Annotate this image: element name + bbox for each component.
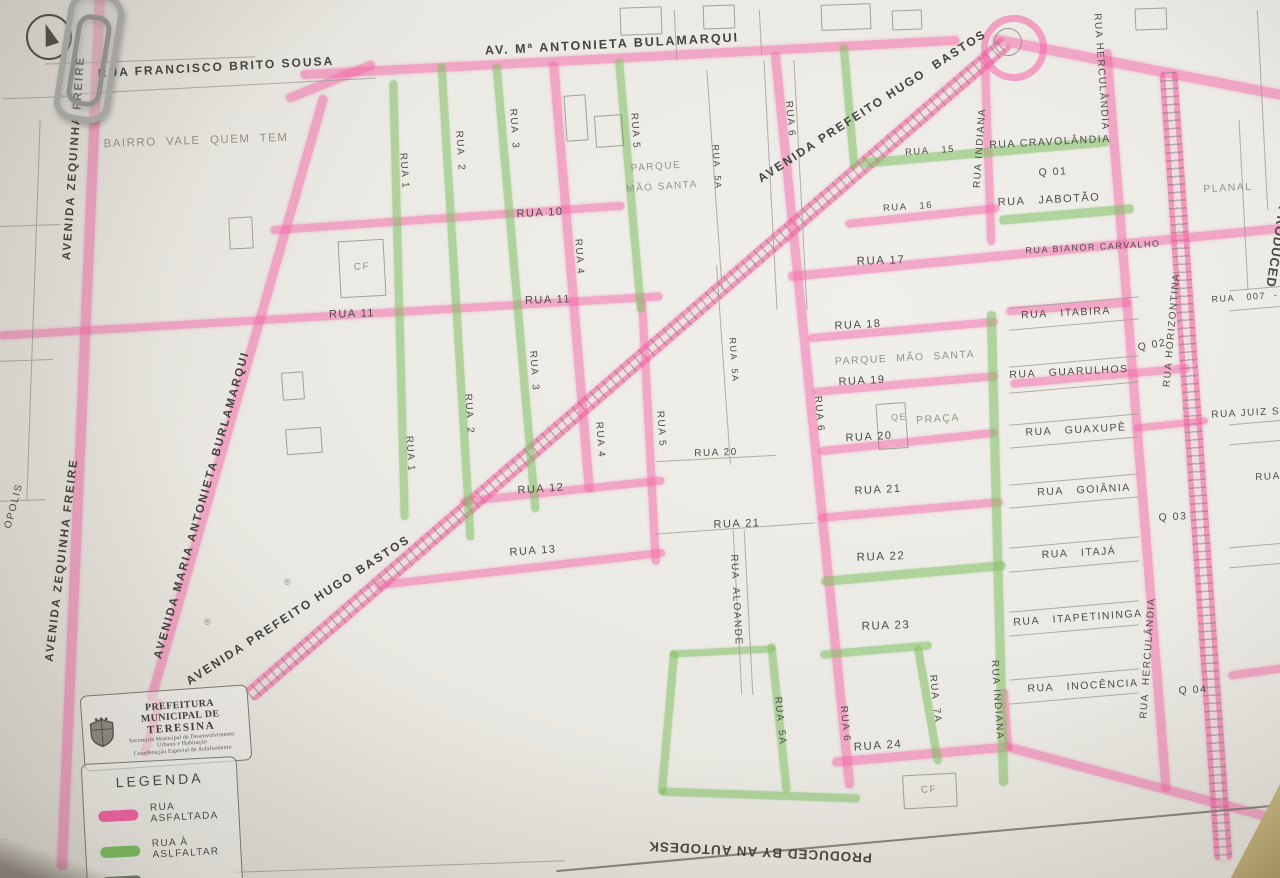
street-label: MÃO SANTA (626, 179, 698, 195)
street-label: RUA 19 (838, 374, 885, 388)
legend-item-label: RUA À ASLFALTAR (152, 834, 241, 861)
street-label: RUA 4 (593, 421, 607, 458)
street-label: RUA 20 (694, 447, 738, 460)
road-rua-22 (820, 560, 1005, 585)
street-label: RUA 5 (654, 410, 668, 447)
map-line (0, 223, 60, 226)
road-loop-west (658, 649, 679, 794)
street-label: RUA 007 - (1211, 290, 1279, 305)
street-label: Q 02 (1137, 337, 1167, 354)
street-label: PRODUCED BY AN AUTODESK (648, 839, 873, 866)
building-outline (821, 3, 872, 31)
road-east-stub (1227, 664, 1280, 680)
street-label: RUA 6 (812, 395, 826, 432)
map-line (1009, 496, 1139, 508)
street-label: CF (921, 784, 938, 796)
street-label: RUA 5 (628, 112, 642, 149)
street-label: RUA 2 (453, 130, 467, 171)
street-label: BAIRRO VALE QUEM TEM (103, 132, 288, 150)
street-label: RUA JABOTÃO (997, 191, 1100, 208)
street-label: PRAÇA (916, 411, 960, 426)
road-rua-21 (818, 498, 1003, 522)
street-label: RUA JUIZ SAI (1211, 405, 1280, 420)
street-label: Q 04 (1178, 683, 1207, 696)
street-label: AVENIDA MARIA ANTONIETA BURLAMARQUI (152, 350, 252, 660)
building-outline (1135, 7, 1168, 30)
building-outline (594, 114, 624, 148)
street-label: OPOLIS (3, 482, 26, 530)
street-label: RUA 20 (845, 430, 892, 444)
stamp-text: PREFEITURA MUNICIPAL DE TERESINA Secreta… (117, 696, 244, 759)
line-rua-aloande (743, 530, 753, 695)
building-outline (892, 9, 923, 30)
building-outline (620, 6, 663, 35)
street-label: PARQUE MÃO SANTA (835, 348, 976, 367)
street-label: AVENIDA PREFEITO HUGO BASTOS (183, 532, 412, 688)
map-line (1229, 562, 1280, 568)
street-label: RUA GOIÂNIA (1037, 482, 1131, 499)
street-label: RUA 22 (856, 550, 905, 564)
street-label: RUA ALOANDE (728, 554, 744, 646)
street-label: RUA 5A (772, 696, 788, 746)
legend-item-asphalted: RUA ASFALTADA (98, 798, 239, 827)
legend-item-partial (102, 870, 242, 878)
map-line (1229, 419, 1280, 425)
street-label: RUA 5A (710, 144, 723, 190)
roundabout-inner (994, 28, 1022, 56)
map-line (235, 860, 565, 873)
legend-title: LEGENDA (82, 768, 237, 792)
street-label: RUA 5A (727, 337, 740, 383)
street-label: CF (354, 261, 371, 273)
street-label: RUA 21 (713, 517, 760, 531)
street-label: QE (891, 411, 908, 422)
street-label: RUA 1 (397, 152, 411, 189)
street-label: RUA 10 (516, 206, 563, 220)
road-loop-south (660, 788, 860, 803)
building-outline (563, 94, 588, 141)
street-label: RUA (1255, 471, 1280, 483)
street-label: PARQUE (630, 160, 681, 174)
building-outline (703, 4, 736, 29)
street-label: RUA INOCÊNCIA (1027, 677, 1139, 695)
street-label: RUA GUAXUPÊ (1025, 421, 1127, 438)
praca-outline (875, 402, 908, 450)
street-label: ® (204, 617, 212, 627)
street-label: RUA ITAJÁ (1041, 545, 1116, 561)
street-label: RUA 11 (525, 293, 571, 307)
street-label: RUA 1 (403, 435, 417, 472)
street-label: PRODUCED (1263, 205, 1280, 289)
map-line (1229, 439, 1280, 445)
line-sheet-right-border (1256, 10, 1267, 210)
street-label: RUA 4 (572, 238, 586, 275)
street-label: RUA 21 (854, 483, 901, 497)
street-label: RUA 18 (834, 318, 881, 332)
road-green-north (840, 43, 859, 168)
map-line (26, 120, 40, 500)
street-label: Q 03 (1158, 510, 1187, 523)
street-label: RUA 17 (856, 254, 905, 268)
map-line (0, 359, 53, 362)
street-label: RUA 13 (509, 543, 557, 558)
street-label: RUA 11 (329, 307, 375, 321)
map-line (1238, 120, 1248, 290)
street-label: RUA 3 (527, 350, 541, 391)
street-label: RUA 23 (861, 619, 910, 633)
street-label: Q 01 (1038, 165, 1067, 178)
map-line (1009, 560, 1139, 572)
street-label: RUA 3 (507, 108, 521, 149)
map-photo: AV. Mª ANTONIETA BULAMARQUIRUA FRANCISCO… (0, 0, 1280, 878)
building-outline (228, 216, 254, 249)
building-outline (281, 371, 305, 400)
street-label: PLANAL (1203, 181, 1253, 196)
photo-shadow-corner (0, 838, 112, 878)
road-loop-north (669, 645, 774, 657)
pink-swatch (98, 809, 139, 822)
legend-item-label: RUA ASFALTADA (150, 798, 239, 825)
building-outline (285, 427, 323, 455)
line-sheet-bottom-border (556, 804, 1280, 872)
map-line (1229, 542, 1280, 548)
street-label: RUA BIANOR CARVALHO (1025, 238, 1161, 255)
coat-of-arms-icon (88, 717, 116, 749)
map-line (1229, 305, 1280, 311)
street-label: RUA 2 (462, 393, 476, 434)
street-label: ® (284, 577, 292, 587)
legend-item-to-asphalt: RUA À ASLFALTAR (100, 834, 241, 863)
map-line (0, 499, 45, 502)
